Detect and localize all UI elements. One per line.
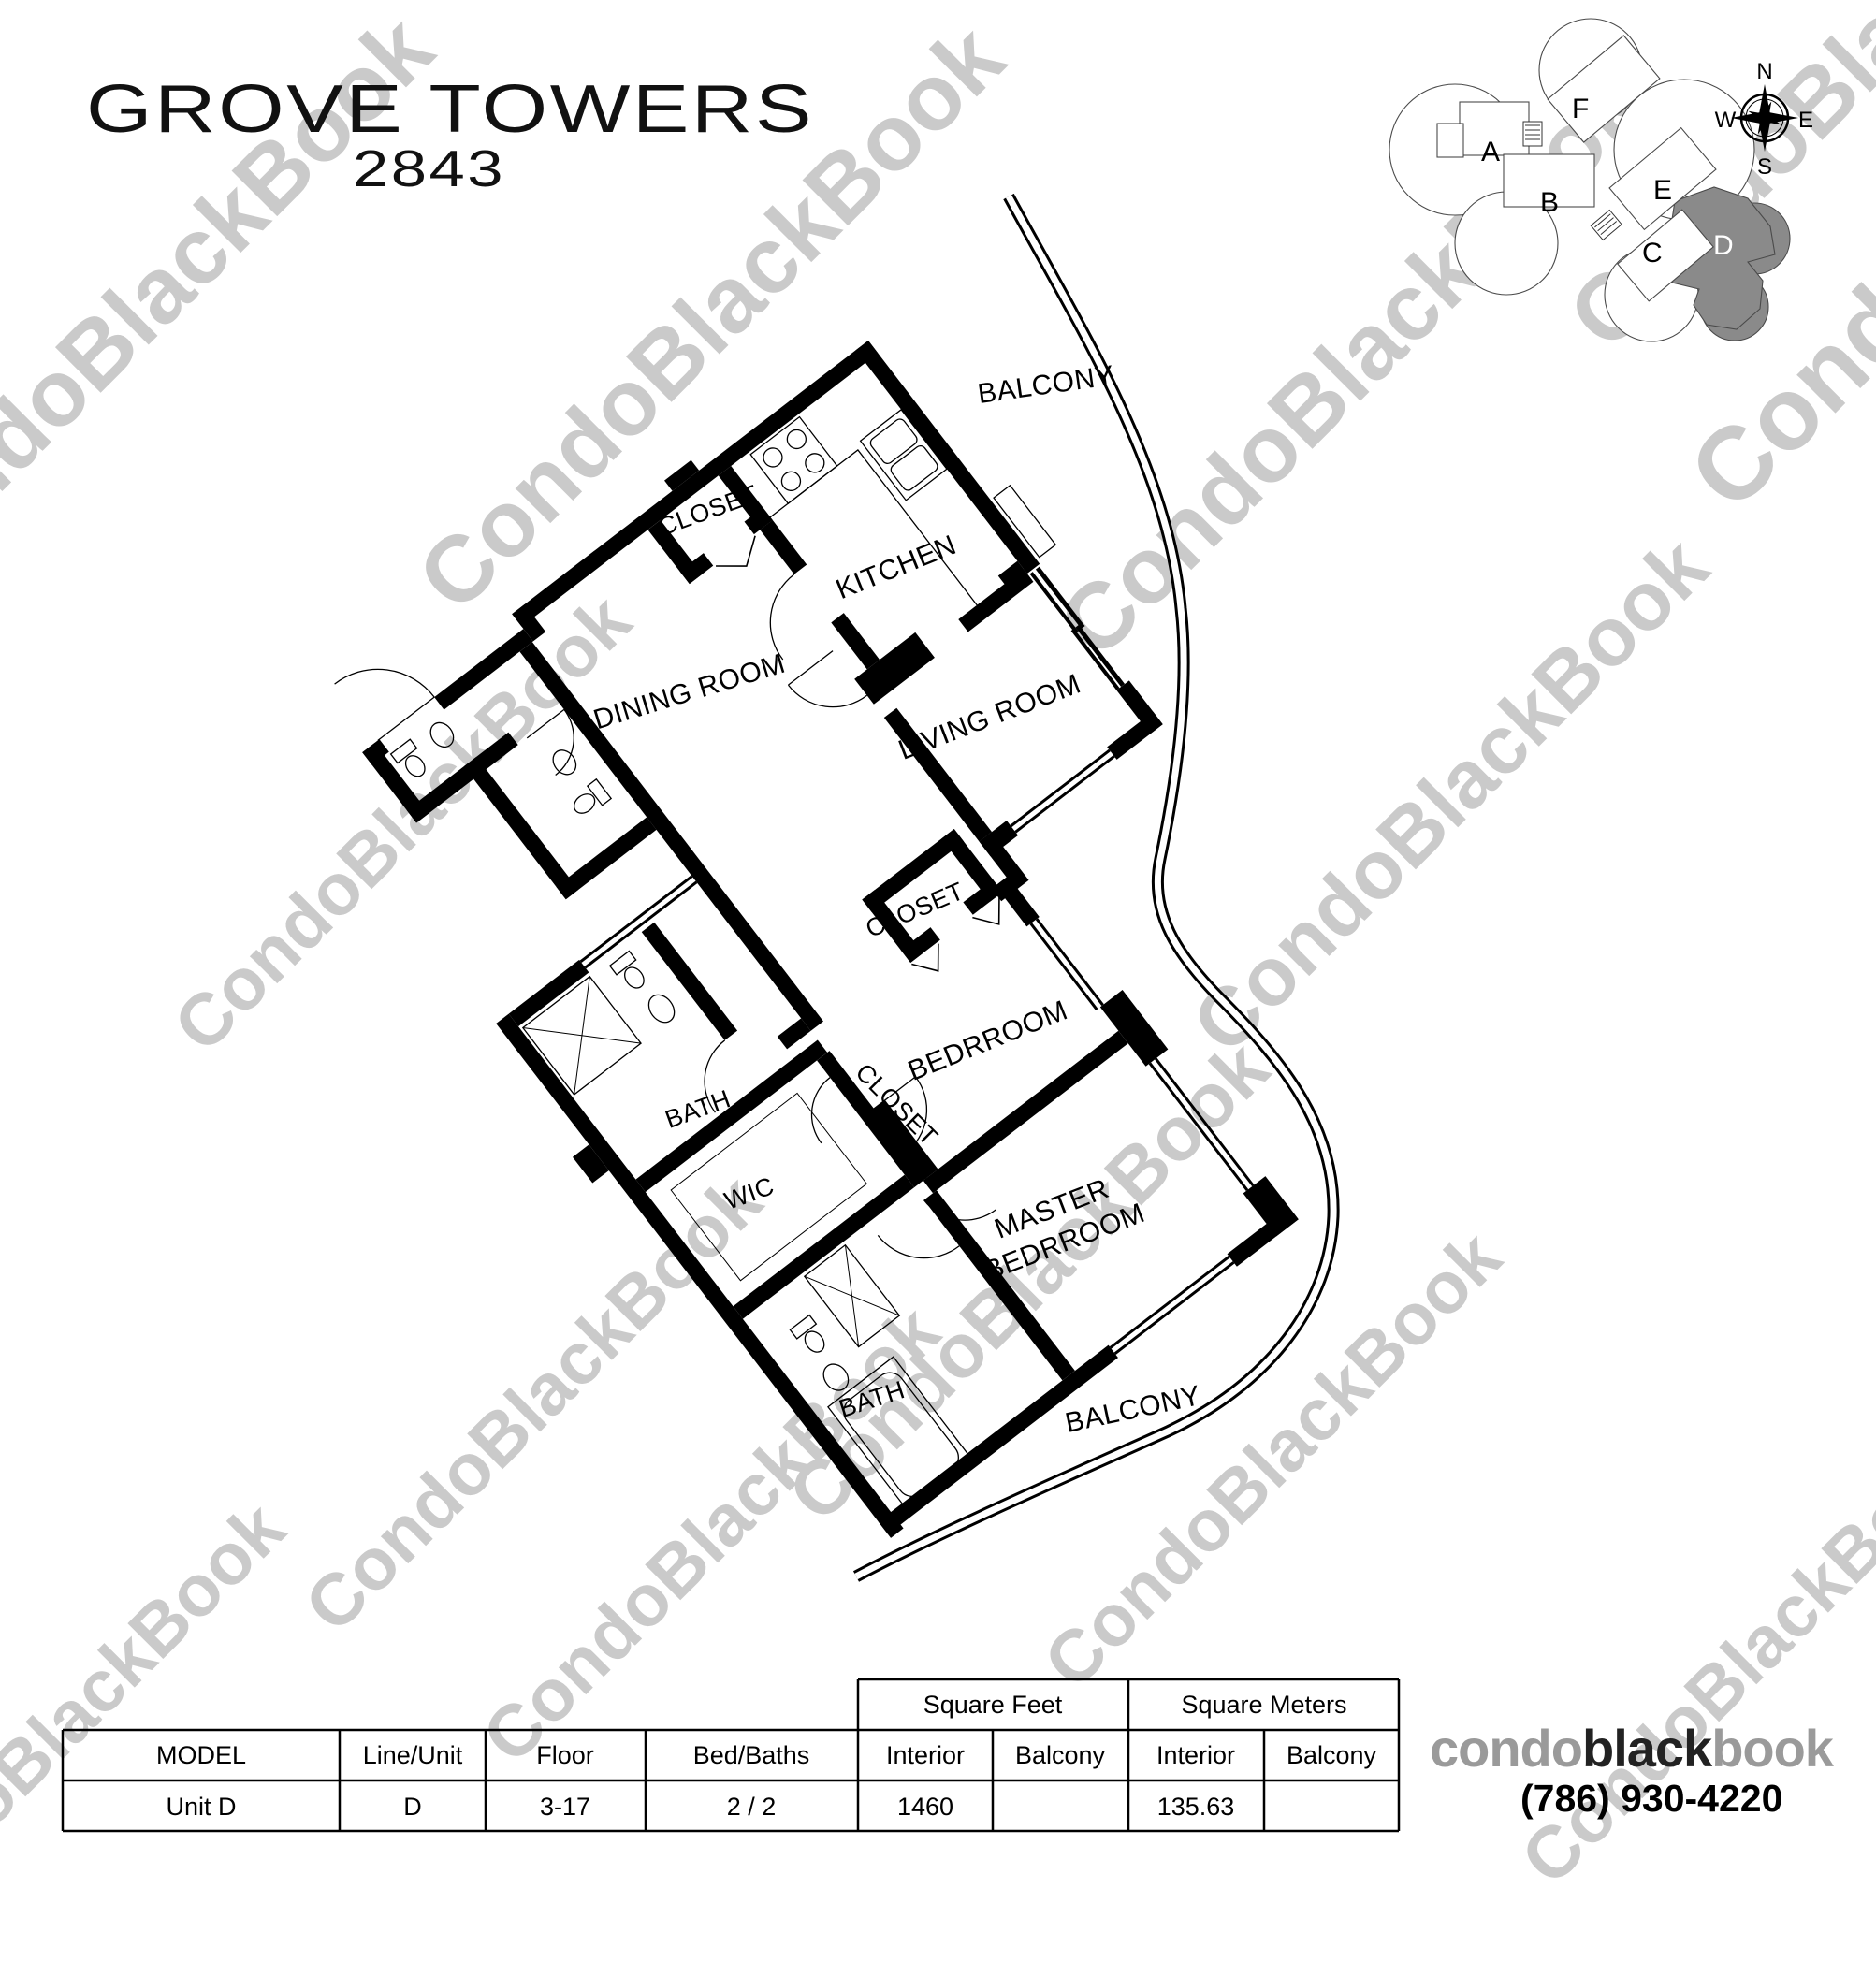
svg-text:D: D <box>1713 230 1734 261</box>
svg-text:N: N <box>1756 59 1772 84</box>
svg-text:Balcony: Balcony <box>1015 1741 1106 1769</box>
svg-text:Interior: Interior <box>886 1741 965 1769</box>
svg-text:A: A <box>1481 137 1500 167</box>
svg-text:Floor: Floor <box>536 1741 594 1769</box>
svg-text:C: C <box>1642 238 1663 269</box>
svg-text:135.63: 135.63 <box>1157 1793 1235 1821</box>
svg-text:E: E <box>1798 108 1813 133</box>
svg-text:Line/Unit: Line/Unit <box>363 1741 463 1769</box>
svg-text:MODEL: MODEL <box>156 1741 246 1769</box>
svg-text:Square Meters: Square Meters <box>1181 1691 1346 1719</box>
svg-text:Unit D: Unit D <box>166 1793 236 1821</box>
svg-text:D: D <box>403 1793 422 1821</box>
svg-text:E: E <box>1653 175 1672 206</box>
svg-text:3-17: 3-17 <box>540 1793 590 1821</box>
svg-text:W: W <box>1715 108 1737 133</box>
svg-text:Square Feet: Square Feet <box>923 1691 1063 1719</box>
svg-text:Balcony: Balcony <box>1287 1741 1377 1769</box>
svg-text:2 / 2: 2 / 2 <box>727 1793 777 1821</box>
svg-text:F: F <box>1572 94 1589 124</box>
svg-text:Bed/Baths: Bed/Baths <box>693 1741 810 1769</box>
svg-text:S: S <box>1757 154 1772 180</box>
svg-text:1460: 1460 <box>897 1793 953 1821</box>
svg-text:Interior: Interior <box>1156 1741 1235 1769</box>
svg-text:B: B <box>1540 187 1559 218</box>
